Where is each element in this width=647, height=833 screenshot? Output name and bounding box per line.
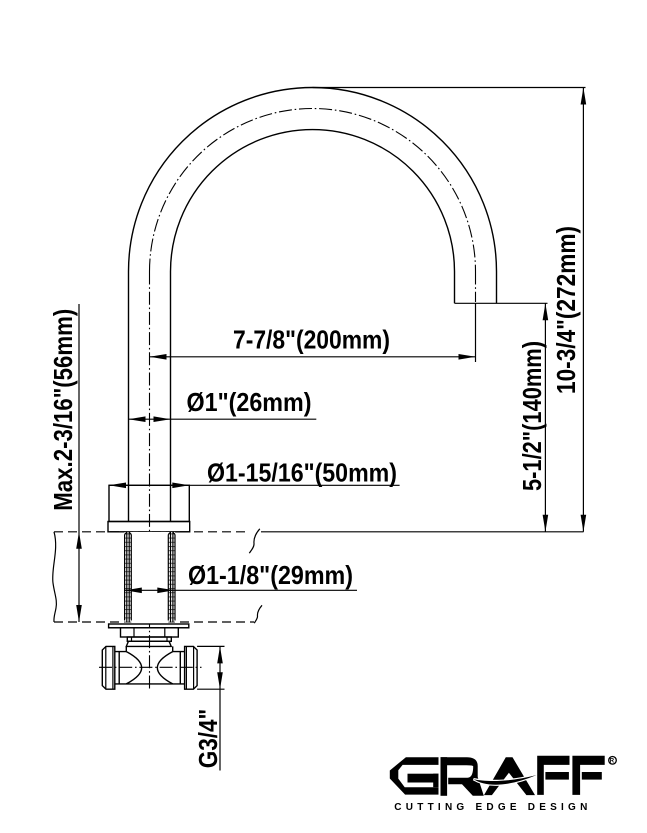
svg-text:Ø1"(26mm): Ø1"(26mm) bbox=[187, 387, 312, 417]
svg-text:7-7/8"(200mm): 7-7/8"(200mm) bbox=[233, 325, 390, 355]
svg-text:10-3/4"(272mm): 10-3/4"(272mm) bbox=[551, 226, 581, 394]
svg-text:Ø1-1/8"(29mm): Ø1-1/8"(29mm) bbox=[188, 560, 353, 590]
svg-text:R: R bbox=[610, 758, 615, 764]
svg-text:G3/4": G3/4" bbox=[193, 709, 223, 769]
svg-text:Max.2-3/16"(56mm): Max.2-3/16"(56mm) bbox=[48, 309, 78, 511]
svg-text:Ø1-15/16"(50mm): Ø1-15/16"(50mm) bbox=[207, 458, 397, 488]
svg-text:5-1/2"(140mm): 5-1/2"(140mm) bbox=[517, 341, 547, 491]
